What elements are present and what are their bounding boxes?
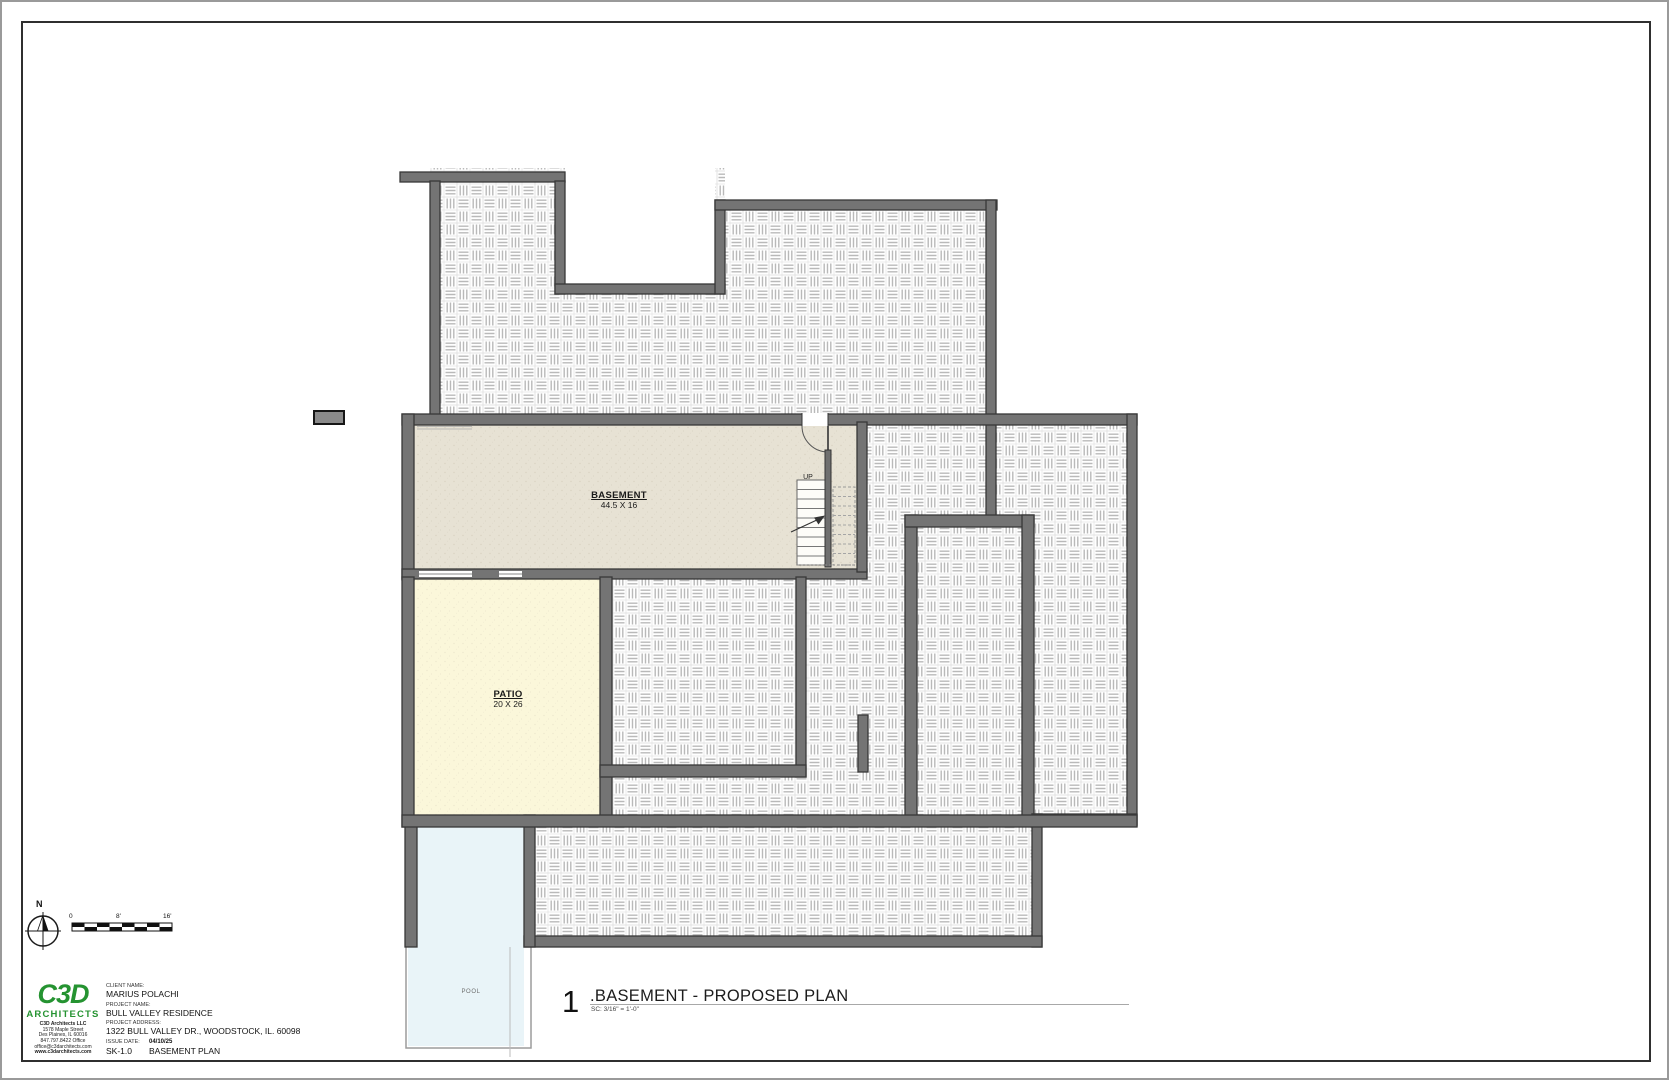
drawing-sheet: { "sheet": { "rooms": { "basement": {"na… — [0, 0, 1669, 1080]
issue-date-value: 04/10/25 — [149, 1039, 172, 1046]
drawing-number: 1 — [562, 985, 579, 1019]
stair-up-label: UP — [796, 474, 820, 482]
drawing-scale: SC: 3/16" = 1'-0" — [591, 1006, 639, 1013]
project-address-value: 1322 BULL VALLEY DR., WOODSTOCK, IL. 600… — [106, 1027, 300, 1036]
patio-label-group: PATIO 20 X 26 — [458, 690, 558, 710]
sheet-name: BASEMENT PLAN — [149, 1047, 220, 1056]
scalebar-tick-0: 0 — [69, 913, 73, 920]
sheet-number: SK-1.0 — [106, 1047, 132, 1056]
patio-room-dims: 20 X 26 — [458, 700, 558, 709]
pool-label: POOL — [436, 989, 506, 996]
north-arrow-icon — [25, 912, 61, 950]
scale-bar — [72, 923, 172, 931]
north-label: N — [36, 900, 43, 910]
drawing-title: .BASEMENT - PROPOSED PLAN — [590, 987, 848, 1005]
issue-date-label: ISSUE DATE: — [106, 1039, 140, 1045]
firm-website: www.c3darchitects.com — [26, 1050, 100, 1056]
project-name-value: BULL VALLEY RESIDENCE — [106, 1009, 213, 1018]
drawing-title-rule — [590, 1004, 1129, 1005]
logo-subbrand: ARCHITECTS — [26, 1010, 100, 1020]
scalebar-tick-16: 16' — [163, 913, 171, 920]
pool — [406, 820, 531, 1048]
firm-logo: C3D ARCHITECTS C3D Architects LLC 1578 M… — [26, 980, 100, 1056]
scalebar-tick-8: 8' — [116, 913, 121, 920]
basement-label-group: BASEMENT 44.5 X 16 — [569, 491, 669, 511]
basement-room-dims: 44.5 X 16 — [569, 501, 669, 510]
detached-pier — [314, 411, 344, 424]
client-name-value: MARIUS POLACHI — [106, 990, 179, 999]
floor-plan-drawing — [2, 2, 1669, 1082]
logo-brand-icon: C3D — [26, 980, 100, 1010]
